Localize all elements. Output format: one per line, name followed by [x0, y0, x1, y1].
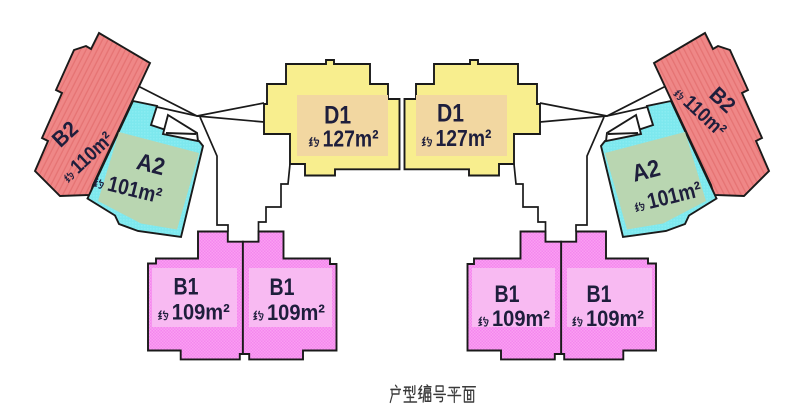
svg-text:B1: B1: [174, 273, 199, 300]
svg-text:D1: D1: [437, 100, 464, 128]
svg-text:B1: B1: [270, 274, 295, 301]
svg-text:109m²: 109m²: [267, 300, 325, 325]
svg-text:109m²: 109m²: [172, 300, 230, 325]
svg-text:109m²: 109m²: [492, 306, 550, 331]
svg-text:127m²: 127m²: [436, 125, 492, 151]
svg-text:B1: B1: [495, 281, 520, 308]
svg-text:127m²: 127m²: [323, 125, 379, 151]
svg-text:109m²: 109m²: [586, 306, 644, 331]
svg-text:B1: B1: [587, 281, 612, 308]
